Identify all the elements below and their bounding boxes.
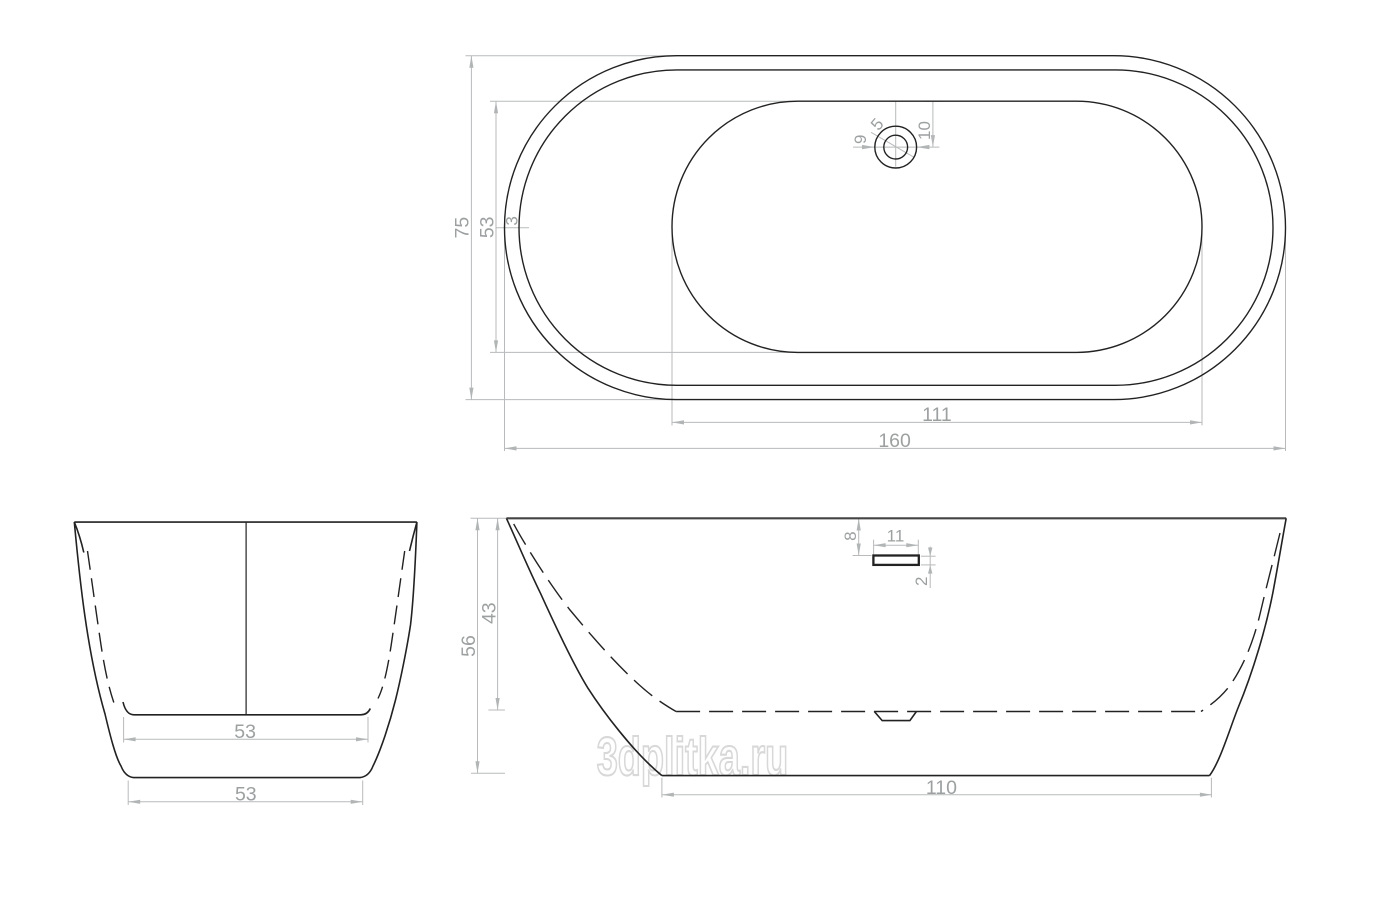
svg-text:5: 5 (867, 115, 888, 134)
svg-text:53: 53 (234, 721, 256, 743)
svg-text:53: 53 (235, 783, 257, 805)
svg-text:10: 10 (915, 121, 934, 140)
svg-text:56: 56 (458, 635, 480, 657)
svg-text:160: 160 (878, 430, 911, 452)
svg-text:53: 53 (477, 216, 499, 238)
svg-text:11: 11 (887, 527, 905, 546)
svg-text:9: 9 (851, 134, 870, 143)
svg-text:75: 75 (451, 217, 473, 239)
svg-text:8: 8 (841, 531, 860, 540)
svg-text:111: 111 (922, 404, 952, 426)
svg-text:43: 43 (479, 602, 501, 624)
svg-text:3dplitka.ru: 3dplitka.ru (597, 727, 789, 787)
svg-text:110: 110 (926, 777, 957, 799)
svg-text:2: 2 (912, 576, 931, 585)
